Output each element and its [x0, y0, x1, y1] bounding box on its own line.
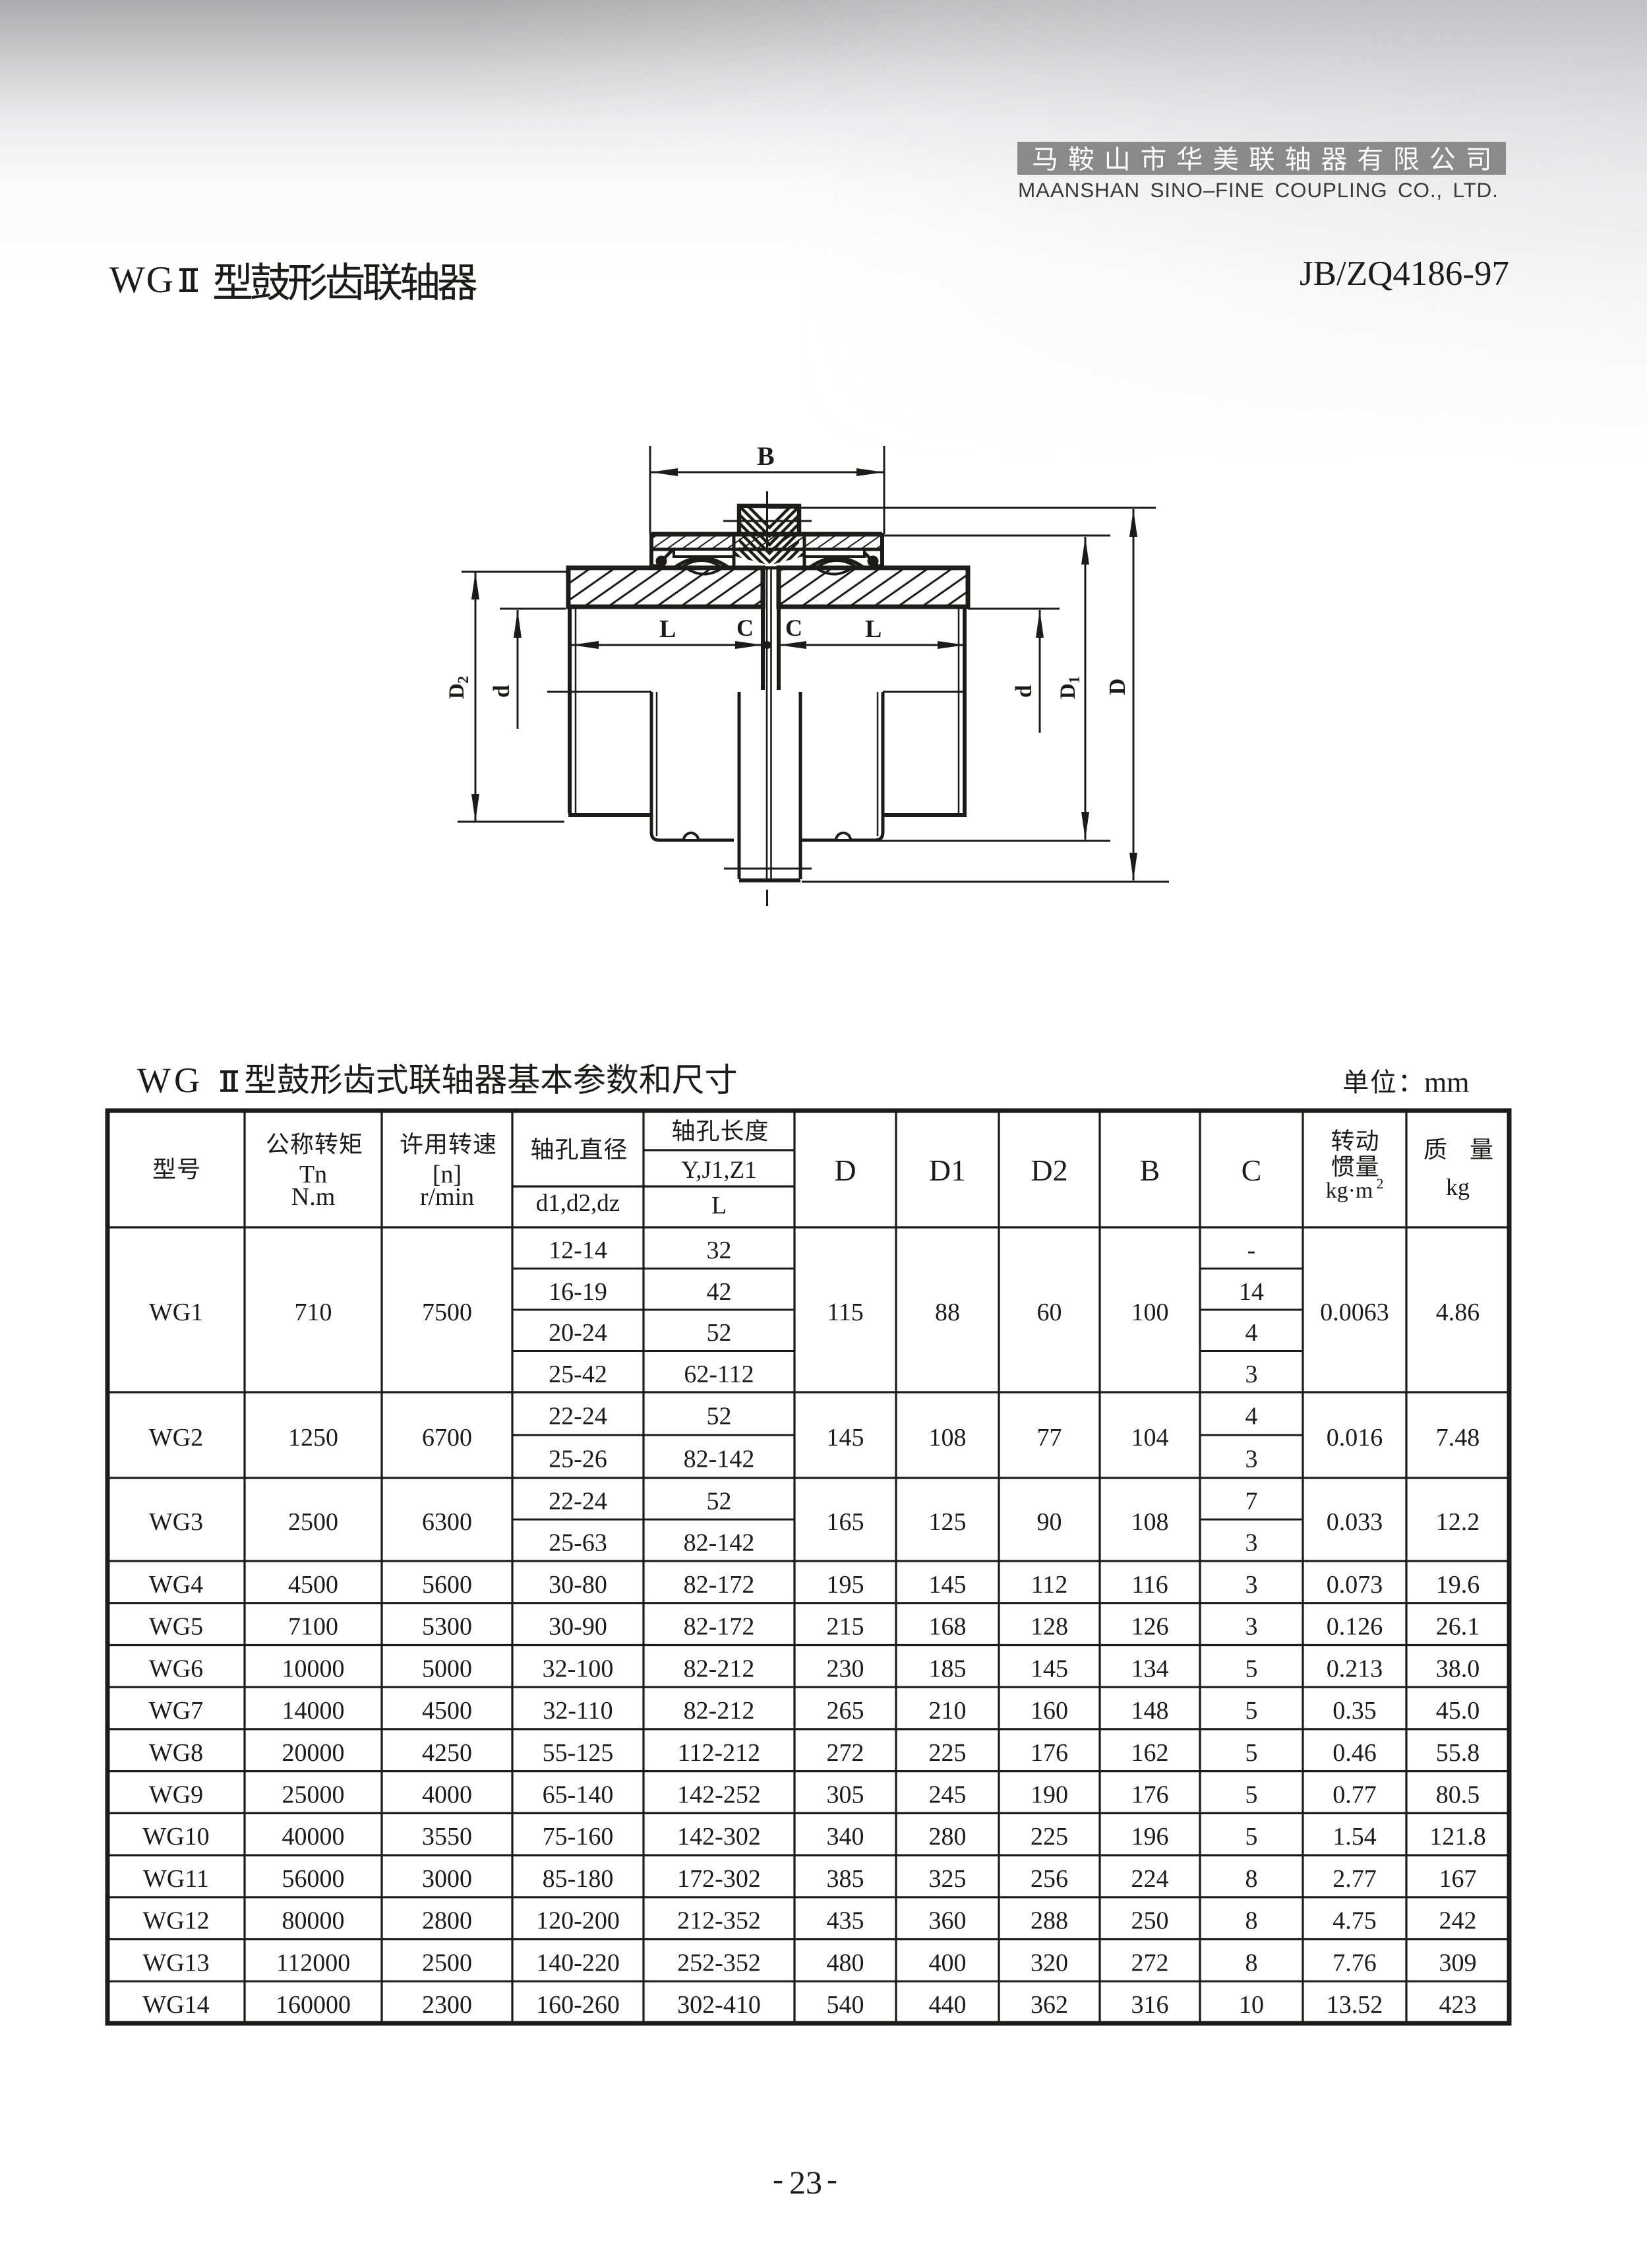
svg-text:128: 128 — [1031, 1613, 1068, 1641]
svg-text:22-24: 22-24 — [549, 1403, 607, 1430]
svg-text:mm: mm — [1424, 1066, 1469, 1099]
svg-text:4.75: 4.75 — [1333, 1907, 1377, 1935]
svg-text:10: 10 — [1239, 1991, 1264, 2019]
svg-text:160: 160 — [1031, 1697, 1068, 1725]
svg-text:-: - — [827, 2162, 837, 2197]
svg-text:MAANSHAN SINO–FINE COUPLING CO: MAANSHAN SINO–FINE COUPLING CO., LTD. — [1018, 178, 1499, 202]
svg-text:710: 710 — [295, 1299, 332, 1326]
svg-text:JB/ZQ4186-97: JB/ZQ4186-97 — [1300, 255, 1509, 293]
svg-text:C: C — [785, 615, 802, 641]
svg-text:d: d — [489, 685, 514, 698]
svg-text:195: 195 — [827, 1571, 864, 1599]
svg-text:WG1: WG1 — [149, 1299, 203, 1326]
svg-text:172-302: 172-302 — [677, 1865, 761, 1893]
svg-text:3: 3 — [1245, 1613, 1258, 1641]
svg-text:82-212: 82-212 — [684, 1697, 755, 1725]
svg-text:145: 145 — [827, 1424, 864, 1452]
svg-text:38.0: 38.0 — [1436, 1655, 1480, 1682]
svg-text:C: C — [1242, 1153, 1262, 1187]
svg-text:1: 1 — [1066, 676, 1083, 684]
svg-text:B: B — [757, 441, 775, 471]
svg-text:WG5: WG5 — [149, 1613, 203, 1641]
svg-text:D1: D1 — [929, 1153, 966, 1187]
svg-text:90: 90 — [1037, 1508, 1062, 1536]
svg-text:160000: 160000 — [276, 1991, 351, 2019]
svg-text:325: 325 — [929, 1865, 967, 1893]
svg-text:7: 7 — [1245, 1488, 1258, 1516]
svg-text:20000: 20000 — [282, 1739, 345, 1767]
svg-text:20-24: 20-24 — [549, 1319, 607, 1347]
svg-text:0.126: 0.126 — [1327, 1613, 1383, 1641]
svg-text:25-63: 25-63 — [549, 1529, 607, 1557]
svg-text:B: B — [1140, 1153, 1160, 1187]
svg-text:212-352: 212-352 — [677, 1907, 761, 1935]
svg-text:16-19: 16-19 — [549, 1278, 607, 1306]
svg-text:0.35: 0.35 — [1333, 1697, 1377, 1725]
svg-text:362: 362 — [1031, 1991, 1068, 2019]
svg-text:242: 242 — [1439, 1907, 1477, 1935]
svg-text:2800: 2800 — [422, 1907, 472, 1935]
svg-text:5: 5 — [1245, 1655, 1258, 1682]
svg-text:D: D — [834, 1153, 856, 1187]
svg-text:0.77: 0.77 — [1333, 1781, 1377, 1809]
svg-text:225: 225 — [1031, 1823, 1068, 1851]
svg-text:2300: 2300 — [422, 1991, 472, 2019]
svg-text:2500: 2500 — [288, 1508, 338, 1536]
svg-text:82-172: 82-172 — [684, 1613, 755, 1641]
svg-text:5: 5 — [1245, 1823, 1258, 1851]
svg-text:121.8: 121.8 — [1429, 1823, 1486, 1851]
svg-text:250: 250 — [1131, 1907, 1169, 1935]
svg-text:3: 3 — [1245, 1446, 1258, 1473]
svg-text:8: 8 — [1245, 1907, 1258, 1935]
svg-text:3: 3 — [1245, 1361, 1258, 1388]
svg-text:d1,d2,dz: d1,d2,dz — [536, 1190, 620, 1217]
svg-text:62-112: 62-112 — [684, 1361, 754, 1388]
svg-text:4250: 4250 — [422, 1739, 472, 1767]
svg-text:WG10: WG10 — [142, 1823, 209, 1851]
svg-text:82-212: 82-212 — [684, 1655, 755, 1682]
svg-text:55.8: 55.8 — [1436, 1739, 1480, 1767]
svg-text:0.033: 0.033 — [1327, 1508, 1383, 1536]
svg-text:12-14: 12-14 — [549, 1237, 607, 1264]
svg-text:0.46: 0.46 — [1333, 1739, 1377, 1767]
svg-text:224: 224 — [1131, 1865, 1169, 1893]
svg-text:82-142: 82-142 — [684, 1529, 755, 1557]
svg-text:116: 116 — [1131, 1571, 1168, 1599]
svg-text:82-172: 82-172 — [684, 1571, 755, 1599]
svg-text:82-142: 82-142 — [684, 1446, 755, 1473]
svg-text:112-212: 112-212 — [678, 1739, 760, 1767]
svg-text:160-260: 160-260 — [536, 1991, 620, 2019]
svg-text:13.52: 13.52 — [1327, 1991, 1383, 2019]
svg-text:14: 14 — [1239, 1278, 1264, 1306]
svg-text:112000: 112000 — [276, 1949, 351, 1977]
svg-text:52: 52 — [707, 1403, 732, 1430]
svg-text:N.m: N.m — [291, 1183, 336, 1211]
svg-text:22-24: 22-24 — [549, 1488, 607, 1516]
svg-text:C: C — [736, 615, 754, 641]
svg-text:25-42: 25-42 — [549, 1361, 607, 1388]
svg-text:185: 185 — [929, 1655, 967, 1682]
svg-text:120-200: 120-200 — [536, 1907, 620, 1935]
svg-text:162: 162 — [1131, 1739, 1169, 1767]
svg-text:WG8: WG8 — [149, 1739, 203, 1767]
svg-text:14000: 14000 — [282, 1697, 345, 1725]
svg-text:302-410: 302-410 — [677, 1991, 761, 2019]
svg-text:360: 360 — [929, 1907, 967, 1935]
svg-text:kg·m: kg·m — [1326, 1179, 1373, 1203]
svg-text:4: 4 — [1245, 1403, 1258, 1430]
svg-text:kg: kg — [1446, 1174, 1470, 1200]
svg-text:85-180: 85-180 — [543, 1865, 614, 1893]
svg-text:55-125: 55-125 — [543, 1739, 614, 1767]
svg-text:L: L — [865, 615, 882, 643]
svg-text:320: 320 — [1031, 1949, 1068, 1977]
svg-text:256: 256 — [1031, 1865, 1068, 1893]
svg-text:142-252: 142-252 — [677, 1781, 761, 1809]
svg-text:52: 52 — [707, 1319, 732, 1347]
svg-text:423: 423 — [1439, 1991, 1477, 2019]
svg-text:4.86: 4.86 — [1436, 1299, 1480, 1326]
svg-text:176: 176 — [1131, 1781, 1169, 1809]
svg-text:WG6: WG6 — [149, 1655, 203, 1682]
svg-text:115: 115 — [827, 1299, 864, 1326]
svg-text:8: 8 — [1245, 1949, 1258, 1977]
svg-text:316: 316 — [1131, 1991, 1169, 2019]
svg-text:5: 5 — [1245, 1697, 1258, 1725]
svg-text:0.213: 0.213 — [1327, 1655, 1383, 1682]
svg-text:176: 176 — [1031, 1739, 1068, 1767]
svg-text:215: 215 — [827, 1613, 864, 1641]
svg-text:1.54: 1.54 — [1333, 1823, 1377, 1851]
svg-text:2.77: 2.77 — [1333, 1865, 1377, 1893]
svg-text:210: 210 — [929, 1697, 967, 1725]
svg-text:d: d — [1011, 685, 1036, 698]
svg-text:2: 2 — [455, 676, 471, 684]
svg-text:145: 145 — [1031, 1655, 1068, 1682]
svg-text:148: 148 — [1131, 1697, 1169, 1725]
svg-text:272: 272 — [1131, 1949, 1169, 1977]
svg-text:10000: 10000 — [282, 1655, 345, 1682]
svg-text:7500: 7500 — [422, 1299, 472, 1326]
svg-text:245: 245 — [929, 1781, 967, 1809]
svg-text:6300: 6300 — [422, 1508, 472, 1536]
svg-text:12.2: 12.2 — [1436, 1508, 1480, 1536]
svg-text:126: 126 — [1131, 1613, 1169, 1641]
svg-text:5600: 5600 — [422, 1571, 472, 1599]
svg-text:D2: D2 — [1031, 1153, 1067, 1187]
svg-text:WG9: WG9 — [149, 1781, 203, 1809]
svg-text:4: 4 — [1245, 1319, 1258, 1347]
svg-text:288: 288 — [1031, 1907, 1068, 1935]
svg-text:5000: 5000 — [422, 1655, 472, 1682]
svg-text:2: 2 — [1377, 1175, 1384, 1192]
svg-text:7100: 7100 — [288, 1613, 338, 1641]
svg-text:40000: 40000 — [282, 1823, 345, 1851]
svg-text:4500: 4500 — [422, 1697, 472, 1725]
svg-text:142-302: 142-302 — [677, 1823, 761, 1851]
svg-text:WG: WG — [109, 259, 175, 301]
svg-text:1250: 1250 — [288, 1424, 338, 1452]
svg-text:WG3: WG3 — [149, 1508, 203, 1536]
svg-text:112: 112 — [1031, 1571, 1068, 1599]
svg-text:30-90: 30-90 — [549, 1613, 607, 1641]
svg-text:WG4: WG4 — [149, 1571, 203, 1599]
svg-text:60: 60 — [1037, 1299, 1062, 1326]
svg-text:65-140: 65-140 — [543, 1781, 614, 1809]
svg-text:WG12: WG12 — [142, 1907, 209, 1935]
svg-text:45.0: 45.0 — [1436, 1697, 1480, 1725]
svg-text:32: 32 — [707, 1237, 732, 1264]
svg-text:WG11: WG11 — [143, 1865, 209, 1893]
svg-text:480: 480 — [827, 1949, 864, 1977]
svg-text:134: 134 — [1131, 1655, 1169, 1682]
svg-text:L: L — [711, 1192, 727, 1219]
svg-text:80.5: 80.5 — [1436, 1781, 1480, 1809]
svg-text:25000: 25000 — [282, 1781, 345, 1809]
svg-text:26.1: 26.1 — [1436, 1613, 1480, 1641]
svg-text:230: 230 — [827, 1655, 864, 1682]
svg-text:WG: WG — [137, 1060, 203, 1100]
svg-text:30-80: 30-80 — [549, 1571, 607, 1599]
svg-text:75-160: 75-160 — [543, 1823, 614, 1851]
svg-text:42: 42 — [707, 1278, 732, 1306]
svg-text:D: D — [1056, 683, 1080, 699]
svg-text:23: 23 — [789, 2164, 822, 2201]
svg-text:100: 100 — [1131, 1299, 1169, 1326]
svg-text:L: L — [659, 615, 676, 643]
svg-text:WG14: WG14 — [142, 1991, 209, 2019]
svg-text:225: 225 — [929, 1739, 967, 1767]
svg-text:0.073: 0.073 — [1327, 1571, 1383, 1599]
svg-text:6700: 6700 — [422, 1424, 472, 1452]
svg-text:8: 8 — [1245, 1865, 1258, 1893]
svg-text:-: - — [1247, 1237, 1256, 1264]
svg-text:Y,J1,Z1: Y,J1,Z1 — [681, 1157, 756, 1184]
svg-text:305: 305 — [827, 1781, 864, 1809]
svg-text:4000: 4000 — [422, 1781, 472, 1809]
svg-text:108: 108 — [929, 1424, 967, 1452]
svg-text:r/min: r/min — [420, 1183, 474, 1211]
svg-text:0.016: 0.016 — [1327, 1424, 1383, 1452]
svg-text:3000: 3000 — [422, 1865, 472, 1893]
svg-text:32-100: 32-100 — [543, 1655, 614, 1682]
svg-text:3550: 3550 — [422, 1823, 472, 1851]
svg-text:385: 385 — [827, 1865, 864, 1893]
svg-text:88: 88 — [935, 1299, 960, 1326]
svg-text:5300: 5300 — [422, 1613, 472, 1641]
svg-text:272: 272 — [827, 1739, 864, 1767]
svg-text:WG2: WG2 — [149, 1424, 203, 1452]
svg-text:309: 309 — [1439, 1949, 1477, 1977]
svg-text:280: 280 — [929, 1823, 967, 1851]
svg-text:56000: 56000 — [282, 1865, 345, 1893]
svg-text:0.0063: 0.0063 — [1320, 1299, 1389, 1326]
svg-text:77: 77 — [1037, 1424, 1062, 1452]
svg-text:145: 145 — [929, 1571, 967, 1599]
svg-text:5: 5 — [1245, 1781, 1258, 1809]
svg-text:168: 168 — [929, 1613, 967, 1641]
svg-text:80000: 80000 — [282, 1907, 345, 1935]
svg-text:19.6: 19.6 — [1436, 1571, 1480, 1599]
svg-text:340: 340 — [827, 1823, 864, 1851]
svg-text:252-352: 252-352 — [677, 1949, 761, 1977]
svg-text:2500: 2500 — [422, 1949, 472, 1977]
svg-text:104: 104 — [1131, 1424, 1169, 1452]
svg-text:3: 3 — [1245, 1571, 1258, 1599]
svg-text:140-220: 140-220 — [536, 1949, 620, 1977]
svg-text:WG7: WG7 — [149, 1697, 203, 1725]
svg-text:165: 165 — [827, 1508, 864, 1536]
svg-text:4500: 4500 — [288, 1571, 338, 1599]
svg-text:25-26: 25-26 — [549, 1446, 607, 1473]
svg-text:265: 265 — [827, 1697, 864, 1725]
svg-text:32-110: 32-110 — [543, 1697, 613, 1725]
svg-text:196: 196 — [1131, 1823, 1169, 1851]
svg-text:D: D — [445, 683, 469, 699]
svg-text:5: 5 — [1245, 1739, 1258, 1767]
svg-text:3: 3 — [1245, 1529, 1258, 1557]
svg-text:-: - — [773, 2162, 783, 2197]
svg-text:540: 540 — [827, 1991, 864, 2019]
svg-text:435: 435 — [827, 1907, 864, 1935]
svg-text:7.48: 7.48 — [1436, 1424, 1480, 1452]
svg-text:D: D — [1104, 679, 1130, 695]
svg-text:7.76: 7.76 — [1333, 1949, 1377, 1977]
svg-text:108: 108 — [1131, 1508, 1169, 1536]
svg-text:190: 190 — [1031, 1781, 1068, 1809]
svg-text:167: 167 — [1439, 1865, 1477, 1893]
svg-text:125: 125 — [929, 1508, 967, 1536]
svg-text:WG13: WG13 — [142, 1949, 209, 1977]
svg-text:52: 52 — [707, 1488, 732, 1516]
svg-text:440: 440 — [929, 1991, 967, 2019]
svg-text:400: 400 — [929, 1949, 967, 1977]
